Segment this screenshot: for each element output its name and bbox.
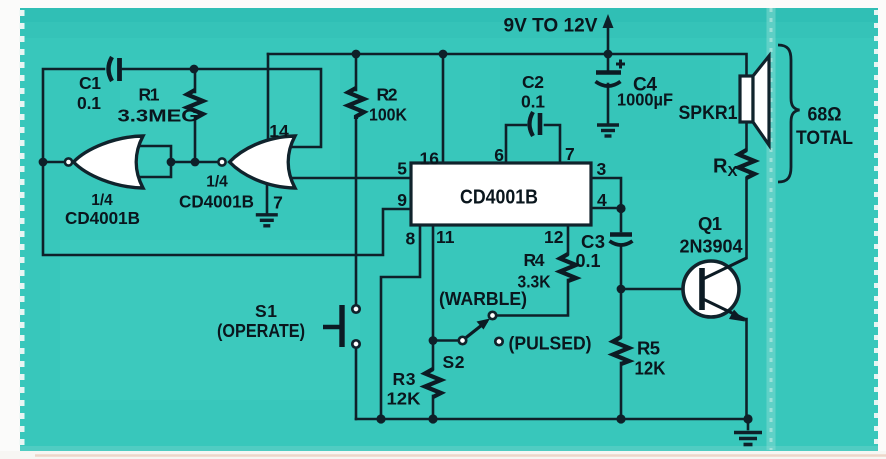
svg-text:12K: 12K: [635, 358, 667, 379]
svg-text:12: 12: [544, 227, 564, 247]
svg-text:(PULSED): (PULSED): [509, 334, 592, 354]
svg-text:7: 7: [565, 144, 575, 164]
svg-text:X: X: [728, 163, 738, 180]
svg-text:SPKR1: SPKR1: [679, 103, 738, 124]
svg-text:(WARBLE): (WARBLE): [439, 289, 527, 309]
svg-text:C2: C2: [522, 72, 544, 92]
svg-text:9V TO 12V: 9V TO 12V: [504, 16, 598, 37]
svg-text:S2: S2: [443, 352, 465, 372]
svg-text:4: 4: [597, 190, 607, 210]
svg-text:1/4: 1/4: [91, 192, 113, 209]
svg-text:5: 5: [397, 159, 407, 179]
svg-text:R: R: [713, 156, 728, 178]
svg-text:R5: R5: [637, 338, 660, 359]
svg-text:TOTAL: TOTAL: [796, 128, 853, 149]
svg-text:3.3MEG: 3.3MEG: [118, 106, 199, 126]
svg-text:R3: R3: [393, 369, 416, 389]
svg-text:1000µF: 1000µF: [617, 90, 673, 110]
svg-text:9: 9: [397, 190, 407, 210]
svg-text:0.1: 0.1: [521, 92, 545, 112]
svg-text:CD4001B: CD4001B: [65, 208, 140, 228]
svg-text:0.1: 0.1: [576, 251, 601, 271]
svg-text:68Ω: 68Ω: [808, 105, 842, 126]
svg-text:CD4001B: CD4001B: [179, 192, 254, 212]
svg-text:16: 16: [420, 149, 440, 169]
svg-text:0.1: 0.1: [77, 93, 101, 113]
svg-text:R4: R4: [524, 250, 545, 270]
svg-text:7: 7: [273, 193, 283, 213]
svg-text:100K: 100K: [369, 105, 407, 125]
svg-text:C1: C1: [79, 73, 101, 93]
svg-text:C3: C3: [581, 231, 605, 252]
svg-text:(OPERATE): (OPERATE): [217, 321, 305, 341]
svg-text:R2: R2: [377, 85, 398, 105]
svg-text:12K: 12K: [387, 389, 421, 409]
svg-text:S1: S1: [255, 301, 277, 321]
svg-text:3: 3: [597, 159, 607, 179]
svg-text:11: 11: [436, 227, 455, 247]
svg-text:R1: R1: [139, 85, 160, 105]
svg-text:6: 6: [494, 145, 504, 165]
svg-text:2N3904: 2N3904: [680, 236, 744, 257]
svg-text:8: 8: [406, 229, 416, 249]
svg-text:CD4001B: CD4001B: [460, 186, 538, 209]
svg-text:1/4: 1/4: [206, 174, 228, 191]
svg-text:Q1: Q1: [698, 213, 722, 234]
svg-text:14: 14: [269, 121, 289, 141]
